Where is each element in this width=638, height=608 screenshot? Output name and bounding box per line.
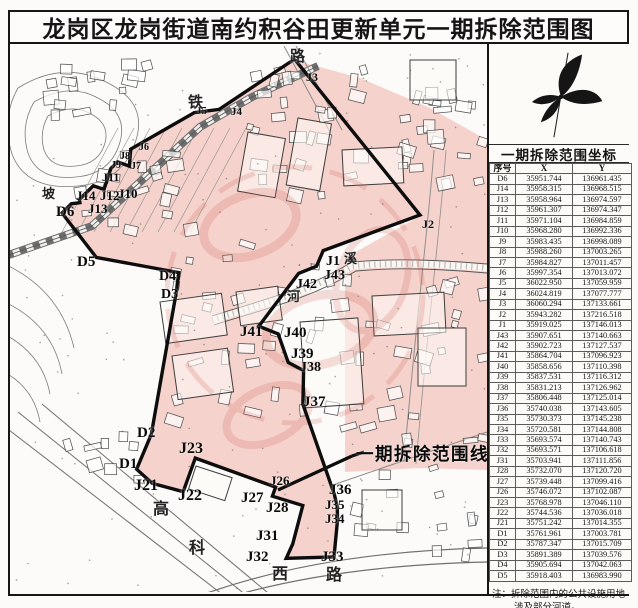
note-text: 注：拆除范围内的公共设施用地 涉及部分河道。	[489, 587, 629, 608]
cell-y: 137144.808	[573, 424, 632, 434]
table-row: J1135971.104136984.859	[490, 216, 632, 226]
cell-x: 36022.950	[516, 278, 573, 288]
table-row: J3135703.941137111.856	[490, 456, 632, 466]
cell-id: J28	[490, 466, 516, 476]
cell-y: 137003.781	[573, 529, 632, 539]
cell-y: 137125.014	[573, 393, 632, 403]
col-y: Y	[573, 164, 632, 174]
table-row: D435905.694137042.063	[490, 560, 632, 570]
cell-id: J3	[490, 299, 516, 309]
cell-y: 137145.238	[573, 414, 632, 424]
table-row: J2235744.536137036.018	[490, 508, 632, 518]
cell-y: 137140.663	[573, 331, 632, 341]
cell-id: J2	[490, 310, 516, 320]
cell-y: 137116.312	[573, 372, 632, 382]
table-row: J135919.025137146.013	[490, 320, 632, 330]
cell-id: J11	[490, 216, 516, 226]
cell-id: J23	[490, 498, 516, 508]
cell-id: D4	[490, 560, 516, 570]
cell-x: 35761.961	[516, 529, 573, 539]
cell-id: J27	[490, 477, 516, 487]
table-row: J935983.435136998.089	[490, 237, 632, 247]
note-line1: 拆除范围内的公共设施用地	[511, 590, 625, 600]
table-row: J2835732.070137120.720	[490, 466, 632, 476]
cell-y: 137133.661	[573, 299, 632, 309]
cell-x: 35961.307	[516, 205, 573, 215]
cell-y: 136983.990	[573, 571, 632, 581]
side-panel: 一期拆除范围坐标 序号 X Y D635951.744136961.435J14…	[487, 44, 629, 594]
cell-x: 35768.978	[516, 498, 573, 508]
cell-id: J42	[490, 341, 516, 351]
coords-table: 序号 X Y D635951.744136961.435J1435958.315…	[489, 163, 632, 582]
cell-x: 35751.242	[516, 518, 573, 528]
cell-id: J36	[490, 404, 516, 414]
cell-x: 35746.072	[516, 487, 573, 497]
cell-x: 35720.581	[516, 424, 573, 434]
map-sheet: 龙岗区龙岗街道南约积谷田更新单元一期拆除范围图	[0, 0, 638, 608]
table-row: J235943.282137216.518	[490, 310, 632, 320]
cell-x: 35907.651	[516, 331, 573, 341]
table-row: J1235961.307136974.347	[490, 205, 632, 215]
cell-id: J4	[490, 289, 516, 299]
cell-y: 137146.013	[573, 320, 632, 330]
note-label: 注：	[492, 590, 511, 600]
cell-id: D6	[490, 174, 516, 184]
cell-y: 137127.537	[573, 341, 632, 351]
cell-x: 35831.213	[516, 383, 573, 393]
cell-y: 137216.518	[573, 310, 632, 320]
cell-y: 137015.709	[573, 539, 632, 549]
cell-x: 35943.282	[516, 310, 573, 320]
cell-id: J6	[490, 268, 516, 278]
cell-x: 35997.354	[516, 268, 573, 278]
cell-y: 137011.457	[573, 257, 632, 267]
table-row: J3735806.448137125.014	[490, 393, 632, 403]
cell-id: J14	[490, 184, 516, 194]
cell-y: 136984.859	[573, 216, 632, 226]
table-row: D135761.961137003.781	[490, 529, 632, 539]
cell-x: 35958.964	[516, 195, 573, 205]
cell-x: 35983.435	[516, 237, 573, 247]
cell-x: 35693.574	[516, 435, 573, 445]
table-row: J536022.950137059.959	[490, 278, 632, 288]
table-row: J4235902.723137127.537	[490, 341, 632, 351]
cell-y: 137106.618	[573, 445, 632, 455]
cell-y: 136992.336	[573, 226, 632, 236]
cell-y: 137140.743	[573, 435, 632, 445]
table-row: J2635746.072137102.087	[490, 487, 632, 497]
cell-x: 35744.536	[516, 508, 573, 518]
cell-x: 35984.827	[516, 257, 573, 267]
cell-y: 136961.435	[573, 174, 632, 184]
cell-id: J41	[490, 351, 516, 361]
cell-y: 137077.777	[573, 289, 632, 299]
cell-id: J8	[490, 247, 516, 257]
cell-x: 35951.744	[516, 174, 573, 184]
cell-y: 137036.018	[573, 508, 632, 518]
table-row: J1035968.280136992.336	[490, 226, 632, 236]
table-row: J635997.354137013.072	[490, 268, 632, 278]
cell-x: 35858.656	[516, 362, 573, 372]
cell-id: J33	[490, 435, 516, 445]
page-title: 龙岗区龙岗街道南约积谷田更新单元一期拆除范围图	[8, 10, 629, 44]
cell-y: 137014.355	[573, 518, 632, 528]
cell-y: 136974.597	[573, 195, 632, 205]
cell-y: 137111.856	[573, 456, 632, 466]
note-line2: 涉及部分河道。	[492, 603, 581, 608]
cell-y: 137003.265	[573, 247, 632, 257]
table-row: J3835831.213137126.962	[490, 383, 632, 393]
cell-id: D3	[490, 550, 516, 560]
cell-y: 137099.416	[573, 477, 632, 487]
cell-id: J32	[490, 445, 516, 455]
cell-x: 35988.260	[516, 247, 573, 257]
cell-y: 137102.087	[573, 487, 632, 497]
cell-y: 136968.515	[573, 184, 632, 194]
table-row: J1335958.964136974.597	[490, 195, 632, 205]
coords-table-title: 一期拆除范围坐标	[489, 144, 629, 163]
cell-id: J12	[490, 205, 516, 215]
table-row: J735984.827137011.457	[490, 257, 632, 267]
cell-y: 137039.576	[573, 550, 632, 560]
cell-x: 35864.704	[516, 351, 573, 361]
cell-id: J40	[490, 362, 516, 372]
cell-x: 35787.347	[516, 539, 573, 549]
cell-x: 35902.723	[516, 341, 573, 351]
cell-id: D5	[490, 571, 516, 581]
table-row: J336060.294137133.661	[490, 299, 632, 309]
table-row: J4135864.704137096.923	[490, 351, 632, 361]
cell-id: J31	[490, 456, 516, 466]
cell-y: 137143.605	[573, 404, 632, 414]
cell-id: J9	[490, 237, 516, 247]
cell-y: 136974.347	[573, 205, 632, 215]
table-row: D235787.347137015.709	[490, 539, 632, 549]
table-row: J3335693.574137140.743	[490, 435, 632, 445]
cell-id: J39	[490, 372, 516, 382]
cell-id: J7	[490, 257, 516, 267]
cell-id: D2	[490, 539, 516, 549]
table-row: J3935837.531137116.312	[490, 372, 632, 382]
cell-id: J35	[490, 414, 516, 424]
table-row: J3535730.373137145.238	[490, 414, 632, 424]
cell-id: J5	[490, 278, 516, 288]
cell-x: 35891.389	[516, 550, 573, 560]
table-row: J4035858.656137110.398	[490, 362, 632, 372]
table-row: J2735739.448137099.416	[490, 477, 632, 487]
table-row: J2335768.978137046.110	[490, 498, 632, 508]
cell-id: J10	[490, 226, 516, 236]
cell-id: J26	[490, 487, 516, 497]
table-row: D535918.403136983.990	[490, 571, 632, 581]
cell-y: 137126.962	[573, 383, 632, 393]
cell-id: J37	[490, 393, 516, 403]
cell-x: 35918.403	[516, 571, 573, 581]
cell-x: 35971.104	[516, 216, 573, 226]
cell-x: 35958.315	[516, 184, 573, 194]
table-row: J2135751.242137014.355	[490, 518, 632, 528]
table-row: J436024.819137077.777	[490, 289, 632, 299]
cell-id: J22	[490, 508, 516, 518]
cell-id: J21	[490, 518, 516, 528]
cell-y: 137120.720	[573, 466, 632, 476]
table-row: J3235693.571137106.618	[490, 445, 632, 455]
cell-x: 36024.819	[516, 289, 573, 299]
cell-x: 35905.694	[516, 560, 573, 570]
table-row: D335891.389137039.576	[490, 550, 632, 560]
cell-x: 35968.280	[516, 226, 573, 236]
cell-x: 35693.571	[516, 445, 573, 455]
cell-x: 35740.038	[516, 404, 573, 414]
north-arrow-icon	[517, 48, 605, 142]
cell-id: J43	[490, 331, 516, 341]
cell-x: 35806.448	[516, 393, 573, 403]
cell-id: J13	[490, 195, 516, 205]
cell-id: J34	[490, 424, 516, 434]
table-row: J835988.260137003.265	[490, 247, 632, 257]
compass-area	[489, 44, 629, 144]
cell-y: 137013.072	[573, 268, 632, 278]
col-x: X	[516, 164, 573, 174]
cell-x: 35837.531	[516, 372, 573, 382]
table-row: J4335907.651137140.663	[490, 331, 632, 341]
table-row: J1435958.315136968.515	[490, 184, 632, 194]
table-row: J3435720.581137144.808	[490, 424, 632, 434]
cell-y: 137046.110	[573, 498, 632, 508]
cell-x: 35739.448	[516, 477, 573, 487]
cell-y: 137110.398	[573, 362, 632, 372]
cell-x: 35730.373	[516, 414, 573, 424]
cell-x: 35703.941	[516, 456, 573, 466]
cell-id: J38	[490, 383, 516, 393]
cell-id: D1	[490, 529, 516, 539]
cell-x: 35919.025	[516, 320, 573, 330]
cell-x: 35732.070	[516, 466, 573, 476]
table-row: J3635740.038137143.605	[490, 404, 632, 414]
col-seq: 序号	[490, 164, 516, 174]
table-row: D635951.744136961.435	[490, 174, 632, 184]
cell-y: 137059.959	[573, 278, 632, 288]
cell-id: J1	[490, 320, 516, 330]
cell-y: 136998.089	[573, 237, 632, 247]
cell-y: 137096.923	[573, 351, 632, 361]
cell-y: 137042.063	[573, 560, 632, 570]
cell-x: 36060.294	[516, 299, 573, 309]
coords-table-header: 序号 X Y	[490, 164, 632, 174]
